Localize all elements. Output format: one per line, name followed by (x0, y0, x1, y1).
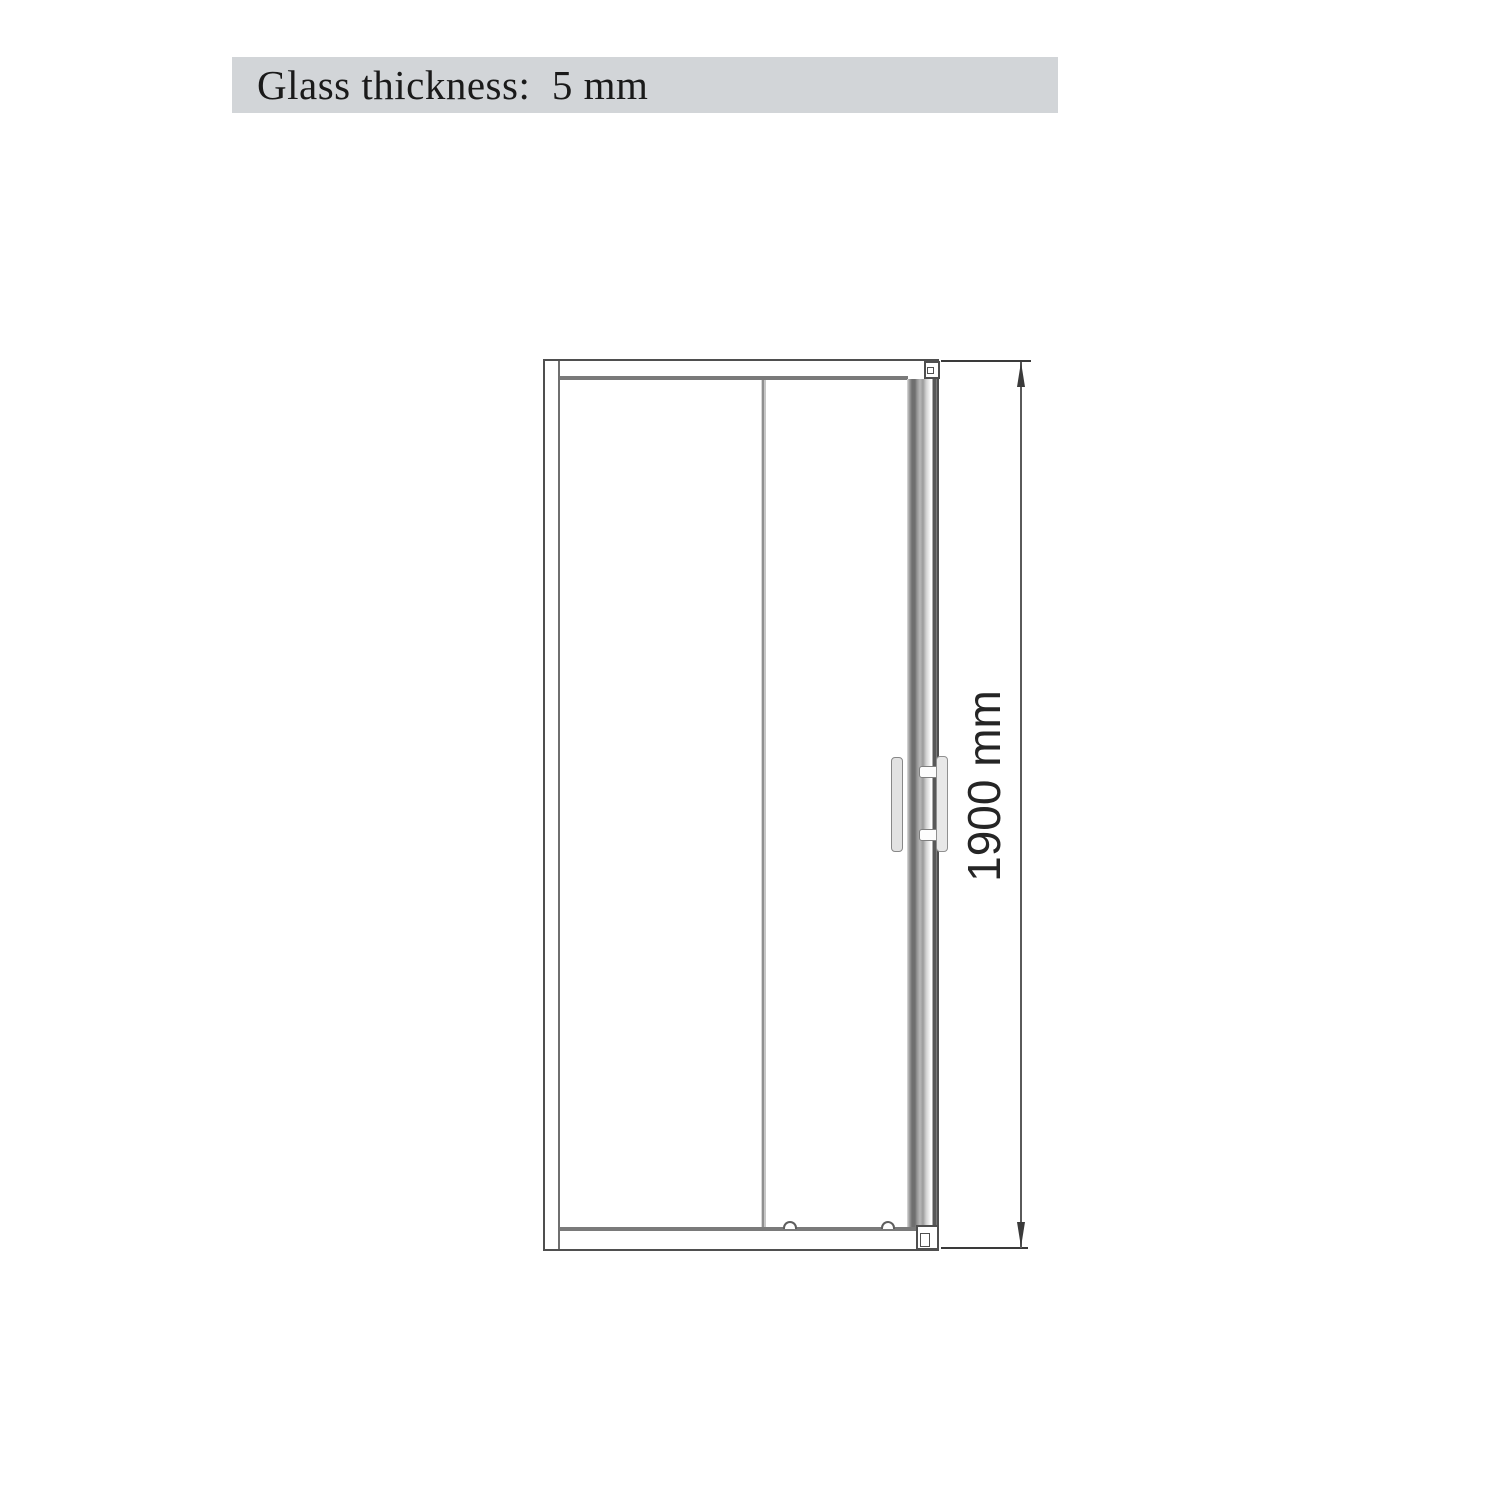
dimension-arrowhead-down-icon (1017, 1222, 1025, 1247)
height-dimension-line (1020, 362, 1022, 1248)
top-guide-bracket (924, 361, 940, 379)
door-handle-inner-bar (891, 757, 903, 852)
page: Glass thickness: 5 mm 1900 mm (0, 0, 1500, 1500)
bottom-guide-bracket-notch (920, 1233, 930, 1247)
door-outer-frame (543, 359, 939, 1251)
dimension-arrowhead-up-icon (1017, 362, 1025, 387)
dimension-extension-line-bottom (941, 1247, 1028, 1249)
shower-door-elevation-drawing: 1900 mm (0, 0, 1500, 1500)
height-dimension-label: 1900 mm (957, 690, 1011, 882)
bottom-guide-bracket (916, 1225, 939, 1250)
door-handle-outer-bar (936, 756, 948, 852)
top-guide-bracket-notch (927, 367, 934, 374)
